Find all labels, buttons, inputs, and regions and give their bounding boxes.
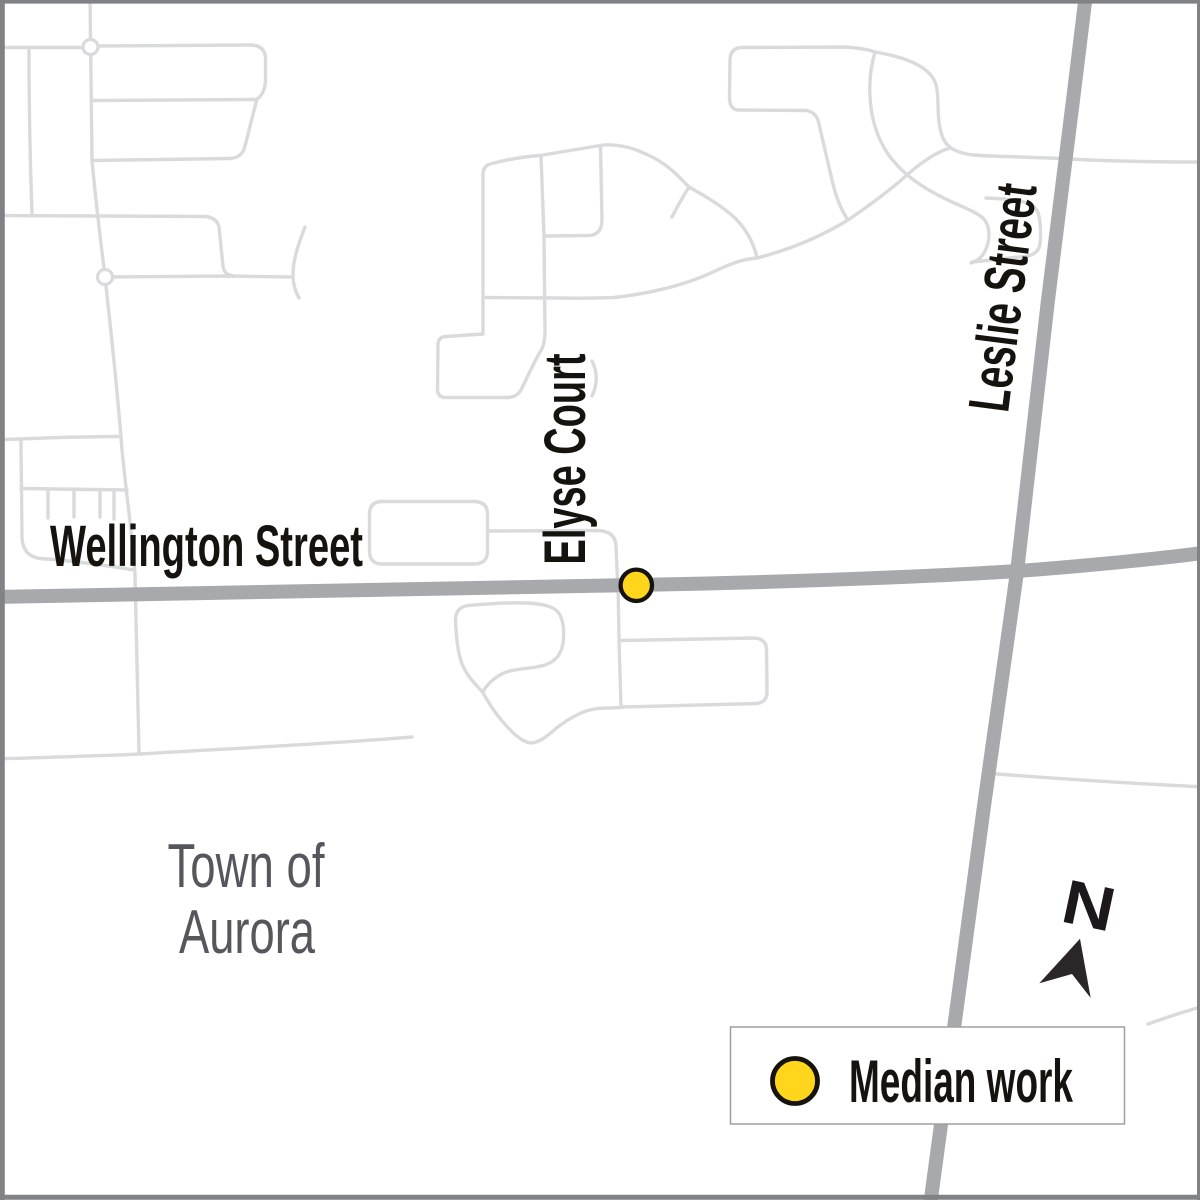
svg-text:Wellington Street: Wellington Street: [50, 514, 363, 579]
svg-text:Aurora: Aurora: [179, 898, 315, 967]
svg-text:Elyse Court: Elyse Court: [533, 354, 598, 565]
svg-text:Median work: Median work: [849, 1048, 1073, 1115]
svg-text:Town of: Town of: [168, 832, 326, 901]
